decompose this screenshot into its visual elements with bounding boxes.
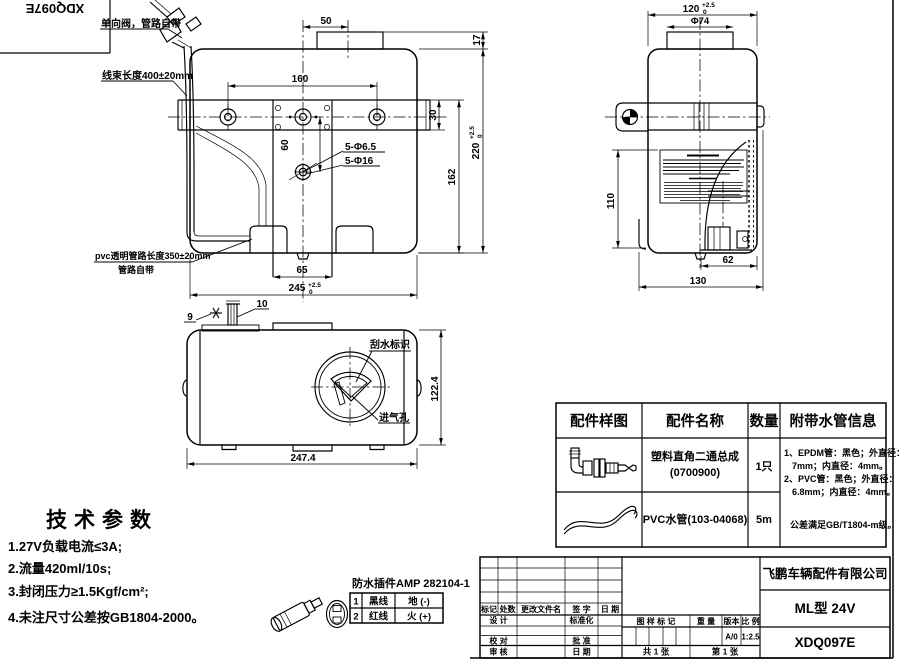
- scale-label: 比 例: [741, 616, 759, 626]
- svg-text:122.4: 122.4: [430, 376, 441, 401]
- dim-foot-65: 65: [273, 265, 332, 277]
- pin-number: 1: [353, 597, 359, 608]
- dim-outlet-62: 62: [701, 255, 757, 270]
- svg-text:6.8mm；内直径：4mm。: 6.8mm；内直径：4mm。: [792, 486, 896, 498]
- svg-text:进气孔: 进气孔: [379, 411, 409, 424]
- dim-hole-spacing-160: 160: [228, 74, 377, 110]
- pin-wire: 红线: [369, 611, 389, 623]
- flipped-drawing-number: XDQ097E: [25, 1, 84, 16]
- tech-param-item: 1.27V负载电流≤3A;: [8, 539, 122, 554]
- svg-text:130: 130: [690, 276, 707, 287]
- pin-number: 2: [353, 612, 358, 623]
- pvc-pipe-sketch: [564, 506, 637, 534]
- svg-text:pvc透明管路长度350±20mm: pvc透明管路长度350±20mm: [95, 250, 210, 261]
- tech-param-item: 3.封闭压力≥1.5Kgf/cm²;: [8, 584, 149, 599]
- parts-header: 配件名称: [666, 412, 724, 430]
- tech-params: 技术参数 1.27V负载电流≤3A; 2.流量420ml/10s; 3.封闭压力…: [8, 508, 205, 625]
- mounting-plate: [273, 100, 332, 277]
- svg-text:Φ74: Φ74: [691, 16, 710, 27]
- engineering-drawing-sheet: XDQ097E: [0, 0, 900, 660]
- svg-text:10: 10: [256, 299, 268, 310]
- parts-header: 配件样图: [570, 412, 628, 430]
- svg-text:7mm；内直径：4mm。: 7mm；内直径：4mm。: [792, 460, 888, 472]
- front-view: 单向阀，管路自带 线束长度400±20mm pvc透明管路长度350±20mm …: [94, 0, 488, 302]
- rev-col-header: 标记: [480, 604, 497, 614]
- pin-polarity: 火 (+): [407, 612, 431, 623]
- rev-col-header: 更改文件名: [521, 604, 561, 614]
- dim-bracket-9: 9: [184, 312, 211, 323]
- dim-cap-17: 17: [383, 32, 488, 49]
- filler-cap: [317, 32, 383, 49]
- role-audit: 审 核: [489, 647, 507, 657]
- hose-info-notes: 1、EPDM管：黑色；外直径： 7mm；内直径：4mm。 2、PVC管：黑色；外…: [784, 447, 900, 530]
- right-foot: [336, 226, 373, 253]
- drawing-number: XDQ097E: [795, 635, 856, 650]
- part-name: PVC水管(103-04068): [643, 512, 748, 526]
- role-standardization: 标准化: [569, 615, 594, 625]
- svg-text:160: 160: [292, 74, 309, 85]
- dim-cap-dia-74: Φ74: [667, 16, 733, 27]
- drawing-svg: XDQ097E: [0, 0, 900, 660]
- parts-header: 数量: [750, 412, 779, 430]
- rev-col-header: 签 字: [571, 604, 590, 614]
- svg-text:+2.5: +2.5: [308, 282, 321, 289]
- svg-text:220: 220: [471, 142, 482, 159]
- rev-col-header: 日 期: [601, 604, 619, 614]
- svg-text:+2.5: +2.5: [469, 126, 476, 139]
- svg-text:30: 30: [428, 109, 439, 121]
- sheet-frame: XDQ097E: [0, 0, 893, 658]
- dim-body-162: 162: [418, 100, 464, 253]
- svg-text:公差满足GB/T1804-m级。: 公差满足GB/T1804-m级。: [790, 519, 897, 530]
- role-approve: 批 准: [572, 636, 590, 646]
- tank-side-outline: [648, 49, 757, 253]
- tech-params-title: 技术参数: [46, 508, 158, 532]
- connector-title: 防水插件AMP 282104-1: [352, 576, 470, 590]
- connector-sketch: [269, 594, 348, 633]
- version-value: A/0: [725, 633, 738, 642]
- connector-pin-table: 1 黑线 地 (-) 2 红线 火 (+): [350, 593, 443, 623]
- bracket-detail: [202, 301, 259, 331]
- pin-wire: 黑线: [369, 596, 389, 608]
- part-qty: 5m: [756, 514, 772, 526]
- callout-check-valve: 单向阀，管路自带: [100, 17, 182, 38]
- plate-top-edge: [273, 323, 332, 330]
- left-foot: [250, 226, 287, 253]
- tech-param-item: 2.流量420ml/10s;: [8, 561, 111, 576]
- dim-pump-height-110: 110: [606, 150, 658, 248]
- company-name: 飞鹏车辆配件有限公司: [762, 566, 887, 581]
- hole-callouts: 5-Φ6.5 5-Φ16: [303, 142, 385, 174]
- svg-text:17: 17: [472, 34, 483, 46]
- svg-text:5-Φ16: 5-Φ16: [345, 156, 374, 167]
- title-block: 标记 处数 更改文件名 签 字 日 期 设 计 标准化 校 对 批 准 审 核 …: [480, 557, 890, 658]
- weight-label: 重 量: [697, 616, 715, 626]
- part-code: (0700900): [670, 467, 720, 479]
- svg-text:245: 245: [289, 283, 306, 294]
- svg-text:120: 120: [683, 4, 700, 15]
- svg-text:65: 65: [296, 265, 308, 276]
- svg-text:247.4: 247.4: [290, 453, 315, 464]
- svg-text:0: 0: [309, 289, 313, 296]
- model-name: ML型 24V: [795, 600, 856, 616]
- svg-text:刮水标识: 刮水标识: [370, 338, 410, 351]
- svg-text:50: 50: [320, 16, 332, 27]
- callout-pvc-pipe: pvc透明管路长度350±20mm 管路自带: [94, 239, 252, 275]
- wiper-blade: [334, 382, 345, 405]
- parts-header: 附带水管信息: [790, 412, 877, 430]
- elbow-fitting-sketch: [569, 448, 636, 477]
- dim-cap-offset-50: 50: [303, 16, 348, 27]
- rear-boss: [757, 106, 764, 127]
- svg-text:0: 0: [703, 9, 707, 16]
- svg-text:62: 62: [722, 255, 734, 266]
- svg-text:5-Φ6.5: 5-Φ6.5: [345, 142, 376, 153]
- version-label: 版本: [723, 616, 740, 626]
- svg-text:2、PVC管：黑色；外直径：: 2、PVC管：黑色；外直径：: [784, 473, 898, 485]
- svg-text:110: 110: [606, 192, 617, 209]
- outlet-nozzle: [695, 253, 706, 259]
- svg-text:162: 162: [447, 168, 458, 185]
- rev-col-header: 处数: [499, 604, 517, 614]
- part-name: 塑料直角二通总成: [651, 449, 739, 463]
- connector-detail: 防水插件AMP 282104-1 1 黑线 地 (-) 2 红线 火 (+): [269, 576, 470, 633]
- sheets-total: 共 1 张: [643, 647, 670, 657]
- hoses: [184, 46, 266, 241]
- svg-text:1、EPDM管：黑色；外直径：: 1、EPDM管：黑色；外直径：: [784, 447, 900, 459]
- drain-hook: [639, 219, 646, 249]
- svg-text:+2.5: +2.5: [702, 2, 715, 9]
- dim-bracket-10: 10: [237, 299, 269, 317]
- parts-table: 配件样图 配件名称 数量 附带水管信息 塑料直角二通总成 (0700900) 1…: [556, 403, 900, 547]
- mark-label: 图 样 标 记: [637, 616, 676, 626]
- warning-label: [660, 150, 747, 203]
- svg-text:9: 9: [187, 312, 193, 323]
- svg-text:60: 60: [280, 139, 291, 151]
- svg-text:0: 0: [477, 134, 484, 138]
- dim-plate-holes-60: 60: [280, 117, 320, 172]
- role-design: 设 计: [489, 615, 507, 625]
- callout-harness-length: 线束长度400±20mm: [101, 69, 193, 96]
- svg-text:线束长度400±20mm: 线束长度400±20mm: [102, 69, 193, 82]
- top-view: 9 10 刮水标识 进气孔: [183, 299, 446, 469]
- pin-polarity: 地 (-): [408, 596, 430, 608]
- dim-total-height-220: 220 +2.5 0: [419, 49, 488, 253]
- tech-param-item: 4.未注尺寸公差按GB1804-2000。: [8, 610, 205, 625]
- scale-value: 1:2.5: [741, 633, 760, 642]
- role-check: 校 对: [489, 636, 507, 646]
- svg-text:管路自带: 管路自带: [118, 264, 154, 275]
- role-date: 日 期: [572, 647, 590, 657]
- sheet-number: 第 1 张: [712, 647, 739, 657]
- dim-top-depth-122: 122.4: [419, 330, 446, 445]
- svg-text:单向阀，管路自带: 单向阀，管路自带: [101, 17, 181, 30]
- part-qty: 1只: [755, 460, 772, 473]
- side-view: 120 +2.5 0 Φ74 110 62 130: [605, 2, 770, 291]
